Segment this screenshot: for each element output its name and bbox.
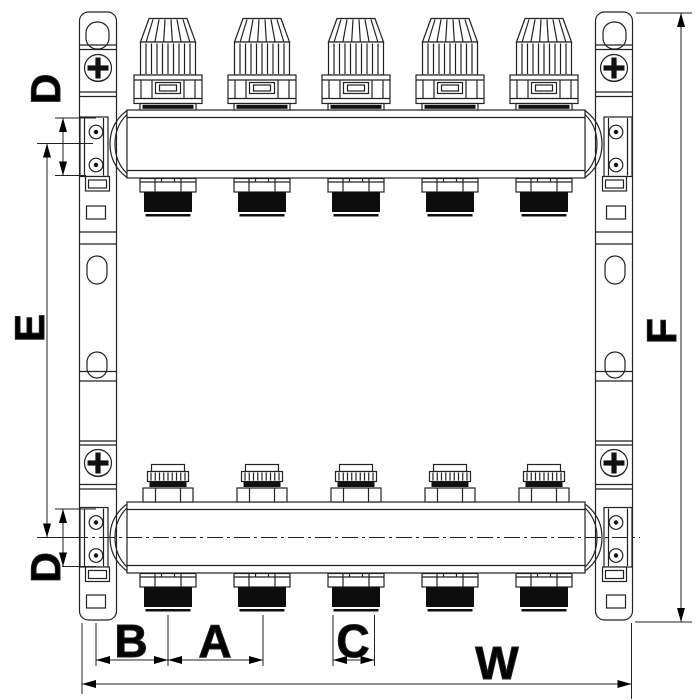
arrowhead-right (154, 656, 168, 664)
dimension-label-c: C (336, 615, 369, 667)
dimension-c: C (333, 615, 375, 667)
top-outlet-2 (234, 179, 290, 217)
thermostatic-valve-caps (134, 19, 578, 111)
lockshield-cap-1 (143, 465, 193, 503)
lockshield-cap-5 (519, 465, 569, 503)
bottom-outlet-4 (422, 574, 478, 612)
top-outlet-4 (422, 179, 478, 217)
top-outlet-5 (516, 179, 572, 217)
lockshield-cap-2 (237, 465, 287, 503)
dimension-label-w: W (475, 637, 519, 689)
arrowhead-left (96, 656, 110, 664)
thermostatic-valve-cap-5 (510, 19, 578, 111)
arrowhead-down (43, 524, 51, 538)
bottom-outlet-1 (140, 574, 196, 612)
bottom-outlet-2 (234, 574, 290, 612)
bottom-outlet-5 (516, 574, 572, 612)
arrowhead-down (677, 608, 685, 622)
arrowhead-up (59, 509, 67, 523)
lockshield-cap-3 (331, 465, 381, 503)
arrowhead-down (59, 162, 67, 176)
thermostatic-valve-cap-4 (416, 19, 484, 111)
dimension-label-d-bottom: D (22, 552, 69, 582)
top-outlet-3 (328, 179, 384, 217)
arrowhead-right (249, 656, 263, 664)
lockshield-cap-4 (425, 465, 475, 503)
arrowhead-left (168, 656, 182, 664)
top-manifold-outlets (140, 179, 572, 217)
arrowhead-up (59, 118, 67, 132)
dimension-label-b: B (114, 615, 147, 667)
thermostatic-valve-cap-3 (322, 19, 390, 111)
dimension-label-a: A (198, 615, 231, 667)
dimension-label-d-top: D (22, 74, 69, 104)
dimension-label-e: E (6, 314, 53, 342)
thermostatic-valve-cap-2 (228, 19, 296, 111)
bottom-manifold-outlets (140, 574, 572, 612)
arrowhead-up (677, 13, 685, 27)
arrowhead-up (43, 144, 51, 158)
thermostatic-valve-cap-1 (134, 19, 202, 111)
drawing-canvas: D E D F B (0, 0, 700, 700)
arrowhead-right (618, 680, 632, 688)
top-manifold-bar (110, 110, 602, 178)
dimension-label-f: F (638, 318, 685, 344)
arrowhead-left (82, 680, 96, 688)
manifold-technical-drawing: D E D F B (0, 0, 700, 700)
dimension-a: A (168, 615, 263, 667)
dimension-f: F (635, 13, 692, 622)
lockshield-caps (143, 465, 569, 503)
dimension-b: B (96, 615, 168, 667)
bottom-outlet-3 (328, 574, 384, 612)
top-outlet-1 (140, 179, 196, 217)
